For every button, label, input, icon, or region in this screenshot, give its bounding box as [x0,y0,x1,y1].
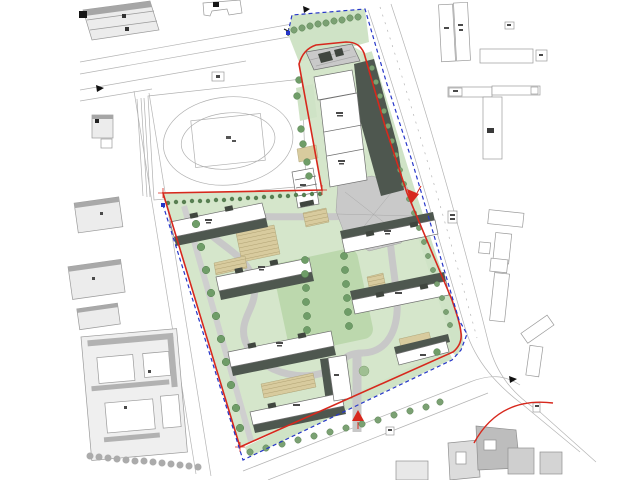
context-building-top-left [79,1,159,40]
black-arrow-icon [509,376,517,383]
road-label-box [533,403,540,412]
site-plan-image [0,0,640,480]
context-building-left-3 [77,303,121,330]
running-track [137,79,306,200]
roundabout-island [359,366,369,376]
context-building-left-2 [68,259,125,299]
context-building-left-1 [74,197,123,233]
context-building-top-center [203,0,242,16]
black-arrow-icon [303,6,310,13]
road-label-box [448,211,457,223]
site-plan-svg [0,0,640,480]
context-buildings-west-of-track [92,115,113,148]
context-courtyard-complex [81,329,187,461]
